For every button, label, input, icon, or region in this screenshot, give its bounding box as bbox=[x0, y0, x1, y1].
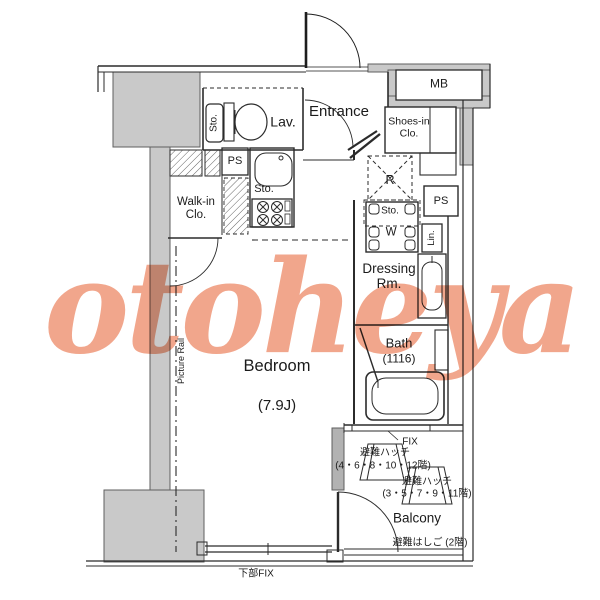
walkin-shelf-hatch-2 bbox=[205, 150, 220, 176]
bedroom-window bbox=[197, 542, 343, 562]
ps-kitchen-label: PS bbox=[228, 155, 243, 167]
shoes-closet-label: Shoes-in Clo. bbox=[388, 116, 429, 140]
walkin-closet-label: Walk-in Clo. bbox=[177, 196, 215, 222]
walkin-closet-label-line2: Clo. bbox=[186, 209, 206, 221]
wall-bottom-left-block bbox=[104, 490, 204, 562]
hatch-upper-name-label: 避難ハッチ bbox=[360, 448, 410, 459]
shoes-closet-label-line2: Clo. bbox=[400, 127, 419, 139]
wall-left-strip bbox=[150, 147, 170, 492]
hatch-lower-floors-label: (3・5・7・9・11階) bbox=[382, 489, 471, 500]
kitchen-sink-icon bbox=[255, 153, 292, 186]
entrance-door-icon bbox=[306, 12, 368, 71]
walkin-shelf-hatch-1 bbox=[170, 150, 202, 176]
linen-label: Lin. bbox=[427, 230, 437, 245]
shoes-closet-label-line1: Shoes-in bbox=[388, 115, 429, 127]
balcony-label: Balcony bbox=[393, 512, 441, 527]
balcony-door-icon bbox=[338, 492, 398, 552]
toilet-storage-label: Sto. bbox=[209, 114, 220, 132]
floor-plan-drawing bbox=[0, 0, 600, 600]
lavatory-label: Lav. bbox=[270, 114, 295, 129]
ps-right-label: PS bbox=[434, 195, 449, 207]
wall-right-upper bbox=[460, 108, 473, 165]
bottom-fix-label: 下部FIX bbox=[238, 569, 274, 580]
hatch-lower-name-label: 避難ハッチ bbox=[402, 477, 452, 488]
stove-icon bbox=[252, 199, 292, 227]
bath-label-size: (1116) bbox=[383, 351, 416, 365]
escape-ladder-label: 避難はしご (2階) bbox=[393, 538, 468, 549]
laundry-storage-label: Sto. bbox=[381, 206, 399, 217]
wall-balcony-stub bbox=[332, 428, 344, 490]
refrigerator-label: R bbox=[385, 174, 394, 188]
washer-label: W bbox=[386, 227, 397, 240]
picture-rail-label: Picture Rail bbox=[177, 338, 187, 384]
wall-top-left-block bbox=[113, 72, 200, 147]
toilet-icon bbox=[224, 103, 267, 141]
dressing-room-label: Dressing Rm. bbox=[362, 261, 415, 291]
utility-area bbox=[364, 156, 458, 318]
fix-leader-line bbox=[388, 431, 398, 440]
bath-label: Bath (1116) bbox=[383, 336, 416, 365]
walkin-door-arc bbox=[170, 238, 218, 286]
fix-label: FIX bbox=[402, 437, 418, 448]
walkin-closet-label-line1: Walk-in bbox=[177, 196, 215, 208]
hatch-upper-floors-label: (4・6・8・10・12階) bbox=[335, 461, 431, 472]
dressing-room-label-line2: Rm. bbox=[377, 276, 402, 291]
bedroom-size-label: (7.9J) bbox=[258, 398, 296, 415]
kitchen-storage-label: Sto. bbox=[254, 183, 274, 195]
kitchen-side-hatch bbox=[224, 178, 248, 234]
bath-label-name: Bath bbox=[386, 335, 413, 350]
bath-counter bbox=[435, 330, 448, 370]
vanity-icon bbox=[418, 254, 446, 318]
dressing-room-label-line1: Dressing bbox=[362, 261, 415, 276]
bedroom-label: Bedroom bbox=[244, 357, 311, 375]
meter-box-label: MB bbox=[430, 77, 448, 90]
entrance-label: Entrance bbox=[309, 104, 369, 121]
floor-plan: MB Entrance Lav. Sto. Shoes-in Clo. PS S… bbox=[0, 0, 600, 600]
